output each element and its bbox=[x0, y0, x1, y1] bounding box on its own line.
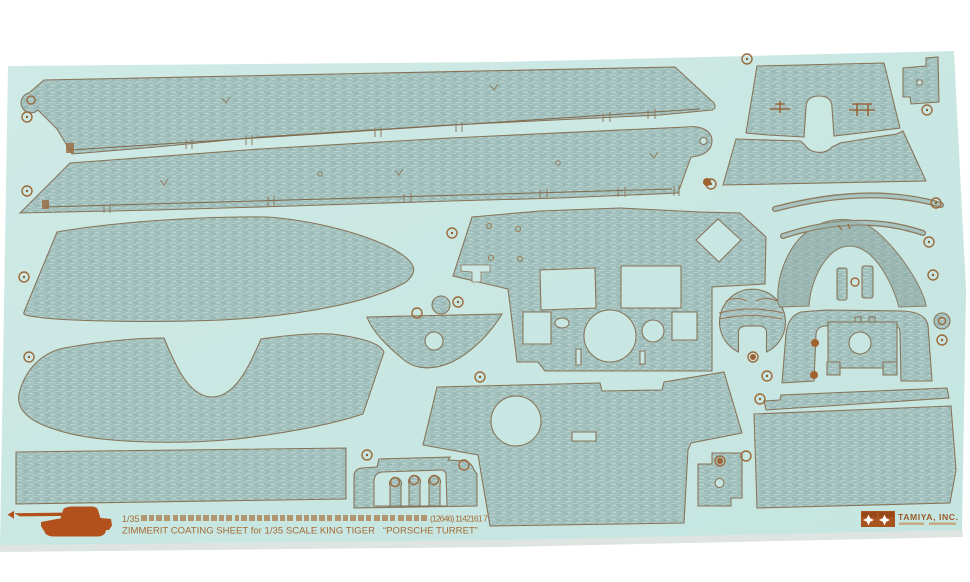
svg-text:ZIMMERIT COATING SHEET for 1/3: ZIMMERIT COATING SHEET for 1/35 SCALE KI… bbox=[122, 526, 478, 536]
svg-text:(12646) 1142161 7: (12646) 1142161 7 bbox=[430, 514, 488, 524]
svg-text:1/35: 1/35 bbox=[122, 514, 140, 524]
svg-text:TAMIYA, INC.: TAMIYA, INC. bbox=[898, 512, 958, 522]
